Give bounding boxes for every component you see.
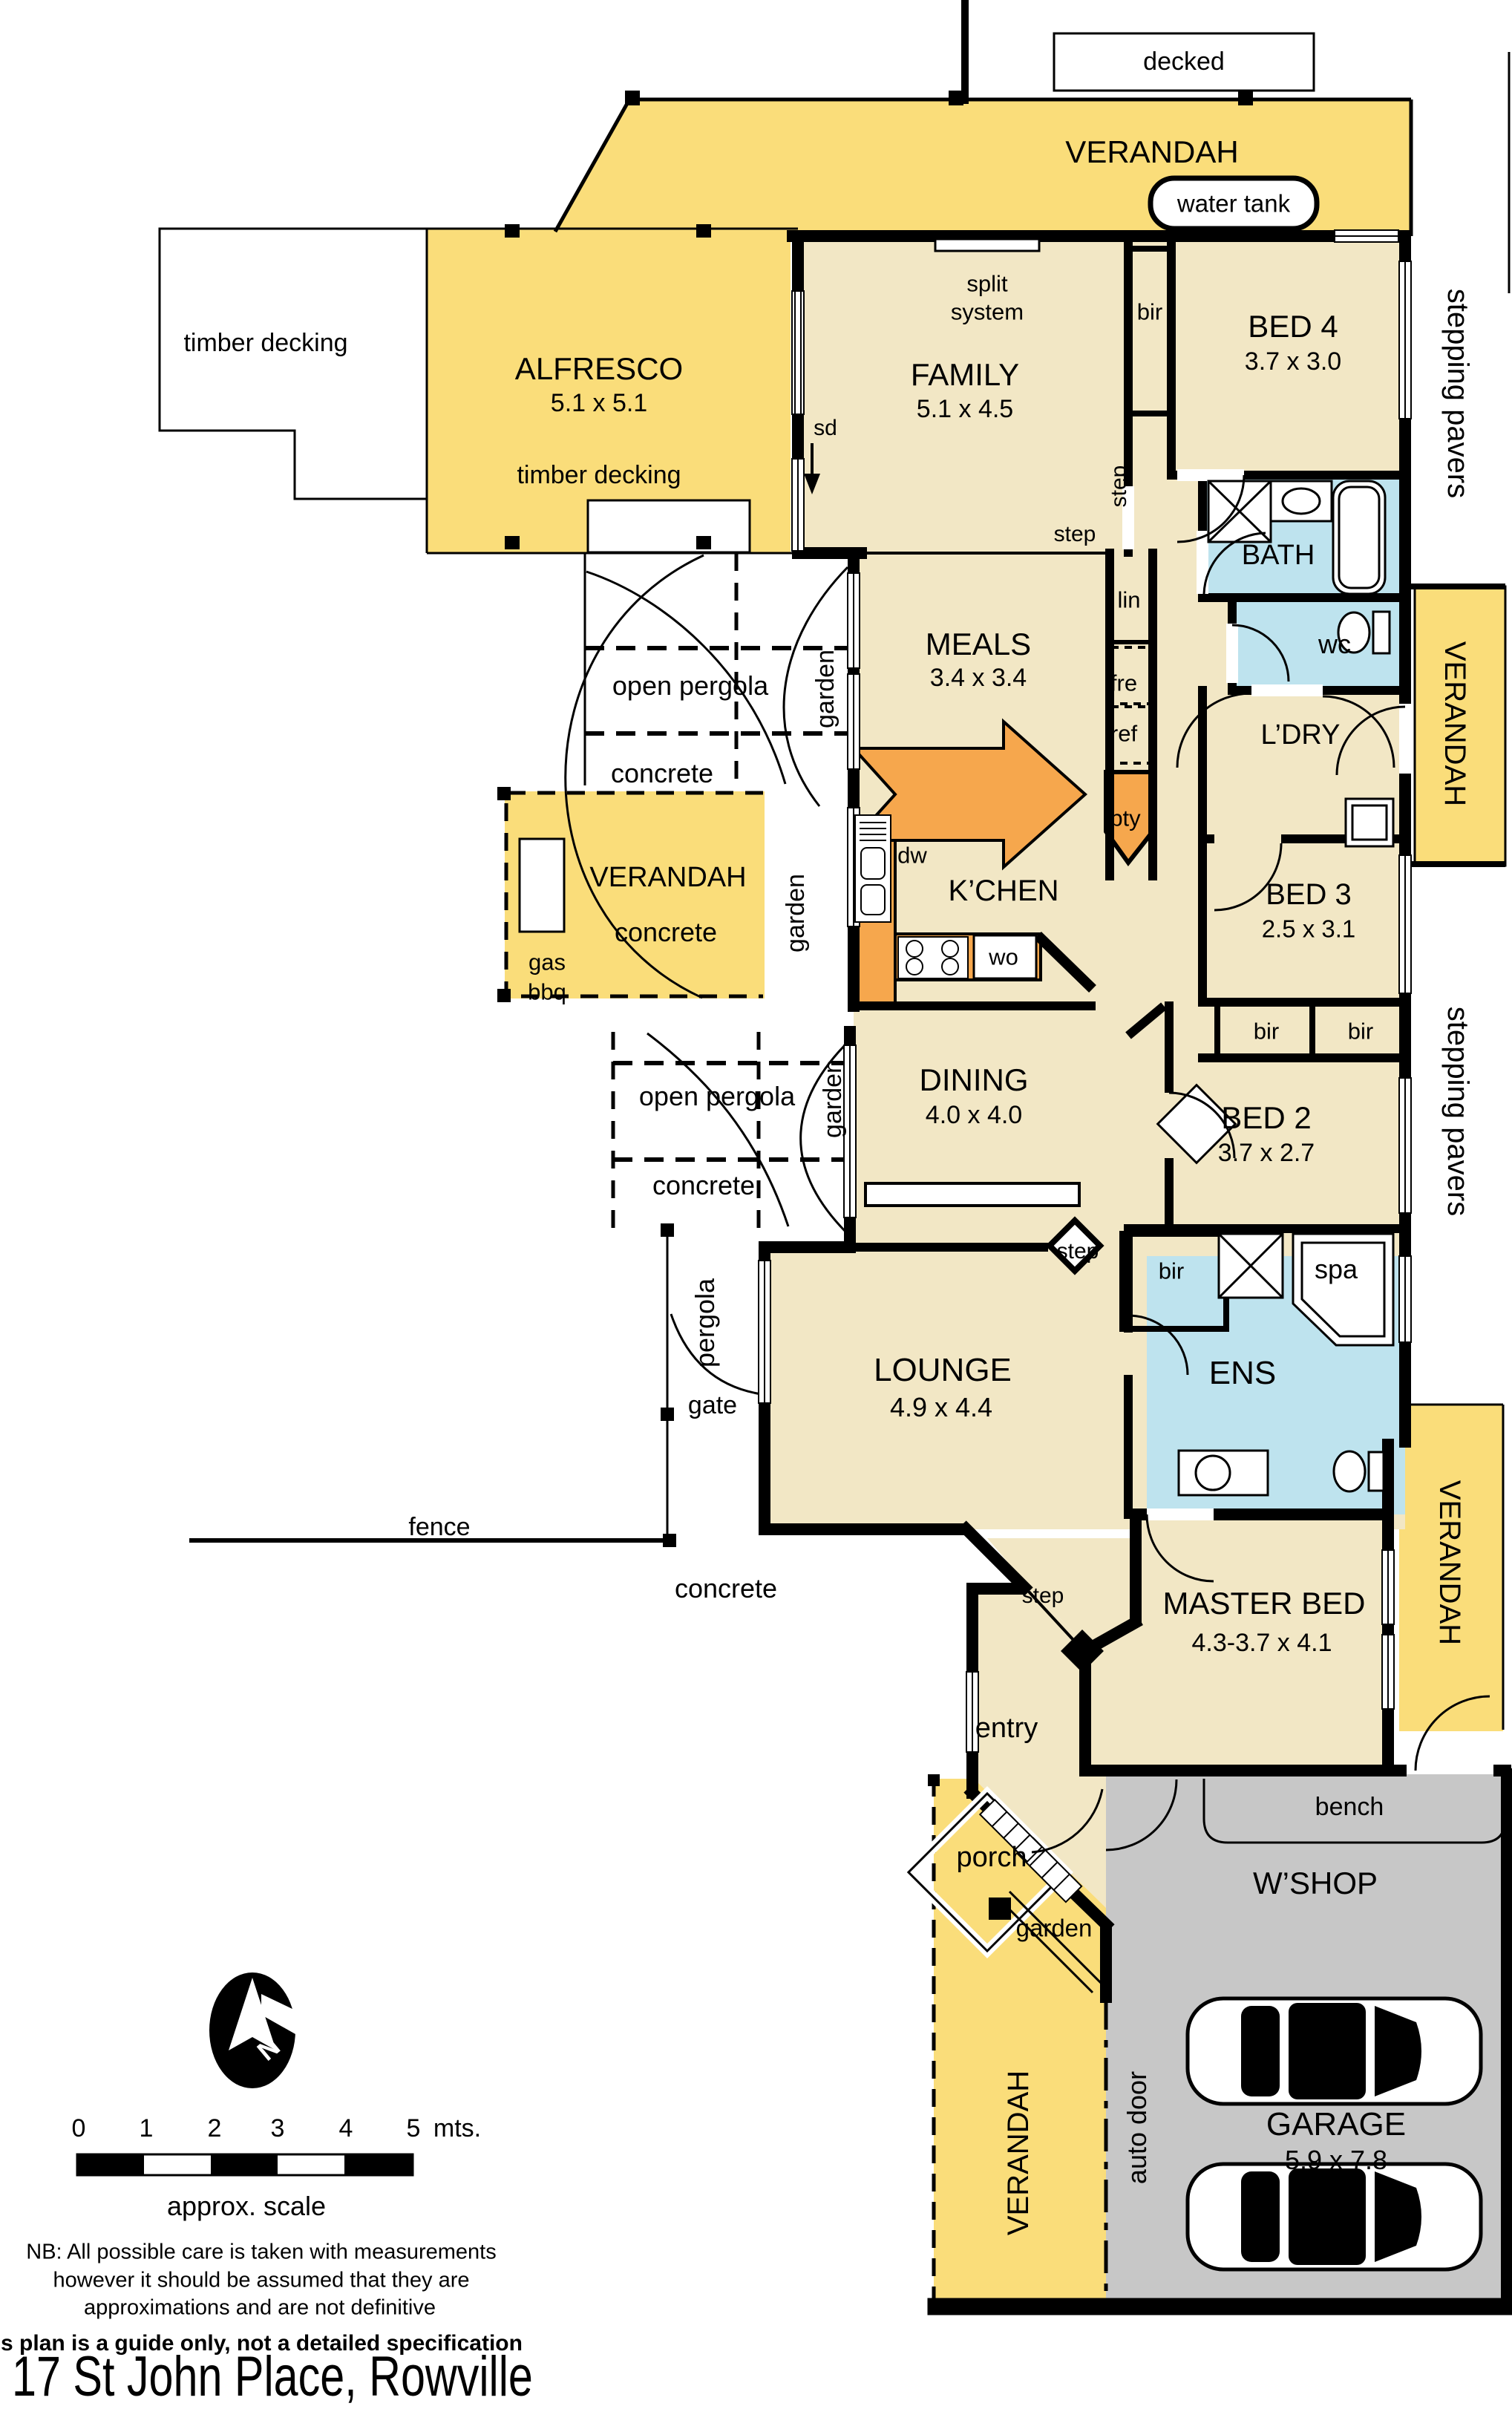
open-pergola-1-label: open pergola (612, 673, 768, 699)
timber-decking-outline (160, 229, 427, 499)
ldry-label: L’DRY (1260, 721, 1340, 749)
bench-label: bench (1315, 1794, 1384, 1820)
open-pergola-2-label: open pergola (639, 1083, 795, 1110)
alfresco-label: ALFRESCO (515, 353, 683, 385)
alfresco-dims: 5.1 x 5.1 (551, 390, 647, 416)
split-system-unit (935, 239, 1039, 251)
scale-tick-4: 4 (339, 2116, 353, 2141)
verandah-top-label: VERANDAH (1065, 137, 1238, 168)
family-dims: 5.1 x 4.5 (917, 396, 1013, 422)
scale-tick-3: 3 (271, 2116, 285, 2141)
verandah-bbq-label: VERANDAH (589, 863, 746, 892)
verandah-bbq-note: concrete (615, 919, 717, 946)
kitchen-label: K’CHEN (949, 876, 1059, 906)
wo-label: wo (989, 946, 1018, 969)
verandah-right-1-label: VERANDAH (1440, 641, 1470, 806)
lounge-dims: 4.9 x 4.4 (890, 1394, 992, 1421)
ref-label: ref (1110, 722, 1137, 745)
garden-1-label: garden (813, 650, 838, 728)
gas-label: gas (528, 951, 566, 974)
wc-label: wc (1318, 631, 1351, 658)
bed2-label: BED 2 (1221, 1102, 1311, 1134)
garden-4-label: garden (1016, 1916, 1093, 1941)
stepping-pavers-2-label: stepping pavers (1443, 1007, 1473, 1216)
garden-3-label: garden (820, 1059, 845, 1138)
bed4-label: BED 4 (1248, 311, 1338, 342)
scale-bar (77, 2154, 413, 2175)
water-tank-label: water tank (1177, 192, 1290, 216)
gate-label: gate (688, 1393, 737, 1418)
bir2-label: bir (1254, 1020, 1279, 1043)
ens-cistern (1369, 1452, 1384, 1491)
ens-label: ENS (1209, 1357, 1276, 1390)
lin-label: lin (1117, 589, 1140, 612)
garage-label: GARAGE (1266, 2108, 1406, 2141)
bir1-label: bir (1137, 301, 1162, 324)
ens-toilet (1334, 1451, 1365, 1491)
split-label: split (966, 272, 1007, 295)
scale-unit: mts. (433, 2116, 481, 2141)
concrete-1-label: concrete (611, 760, 713, 787)
concrete-3-label: concrete (675, 1575, 777, 1602)
page-title: 17 St John Place, Rowville (12, 2344, 533, 2409)
wc-cistern (1373, 612, 1390, 653)
bed3-dims: 2.5 x 3.1 (1262, 917, 1356, 941)
meals-label: MEALS (926, 629, 1031, 660)
fre-label: fre (1110, 672, 1137, 695)
scale-tick-5: 5 (407, 2116, 421, 2141)
family-label: FAMILY (911, 359, 1019, 390)
bbq-label: bbq (528, 981, 566, 1004)
alfresco-note: timber decking (517, 462, 681, 488)
verandah-bottom-label: VERANDAH (1004, 2070, 1033, 2235)
gas-bbq (520, 839, 564, 932)
master-label: MASTER BED (1162, 1588, 1365, 1619)
step2-label: step (1054, 523, 1096, 546)
pty-label: pty (1110, 807, 1140, 830)
garden-2-label: garden (783, 874, 808, 952)
scale-tick-1: 1 (140, 2116, 154, 2141)
bed3-label: BED 3 (1266, 880, 1352, 909)
fence-label: fence (408, 1514, 470, 1540)
scale-caption: approx. scale (167, 2193, 326, 2220)
master-dims: 4.3-3.7 x 4.1 (1191, 1630, 1332, 1655)
dw-label: dw (897, 844, 927, 867)
bir4-label: bir (1159, 1260, 1184, 1283)
concrete-2-label: concrete (652, 1172, 755, 1199)
step4-label: step (1022, 1585, 1064, 1607)
bed4-dims: 3.7 x 3.0 (1245, 349, 1341, 374)
pergola2-dashes (613, 1063, 852, 1160)
floor-plan: decked VERANDAH water tank timber deckin… (0, 0, 1512, 2402)
bath-label: BATH (1242, 541, 1315, 569)
car-2 (1188, 2164, 1481, 2269)
entry-label: entry (975, 1714, 1038, 1742)
nb-line-2: however it should be assumed that they a… (53, 2270, 470, 2292)
sd-label: sd (814, 417, 837, 439)
verandah-right-2-label: VERANDAH (1435, 1480, 1464, 1645)
scale-tick-0: 0 (72, 2116, 86, 2141)
car-1 (1188, 1998, 1481, 2104)
system-label: system (951, 301, 1024, 324)
wshop-label: W’SHOP (1253, 1868, 1378, 1899)
scale-tick-2: 2 (208, 2116, 222, 2141)
compass (209, 1972, 295, 2088)
alfresco-notch (588, 500, 750, 552)
ens-basin (1196, 1456, 1230, 1490)
meals-dims: 3.4 x 3.4 (930, 665, 1027, 690)
stepping-pavers-1-label: stepping pavers (1443, 289, 1473, 498)
nb-line-3: approximations and are not definitive (84, 2298, 436, 2319)
dining-label: DINING (920, 1065, 1029, 1096)
lounge-label: LOUNGE (874, 1354, 1012, 1387)
auto-door-label: auto door (1124, 2071, 1151, 2184)
nb-line-1: NB: All possible care is taken with meas… (26, 2242, 496, 2263)
bir3-label: bir (1348, 1020, 1373, 1043)
porch-label: porch (956, 1843, 1027, 1872)
dining-seat (865, 1183, 1079, 1206)
garage-dims: 5.9 x 7.8 (1285, 2147, 1387, 2174)
spa-label: spa (1315, 1256, 1358, 1283)
bath-basin (1283, 488, 1320, 514)
pergola-label: pergola (692, 1278, 719, 1367)
step1-label: step (1108, 465, 1130, 508)
timber-decking-label: timber decking (183, 330, 347, 356)
step3-label: step (1057, 1241, 1099, 1263)
decked-label: decked (1143, 49, 1225, 74)
bed2-dims: 3.7 x 2.7 (1218, 1140, 1315, 1166)
dining-dims: 4.0 x 4.0 (926, 1102, 1022, 1128)
